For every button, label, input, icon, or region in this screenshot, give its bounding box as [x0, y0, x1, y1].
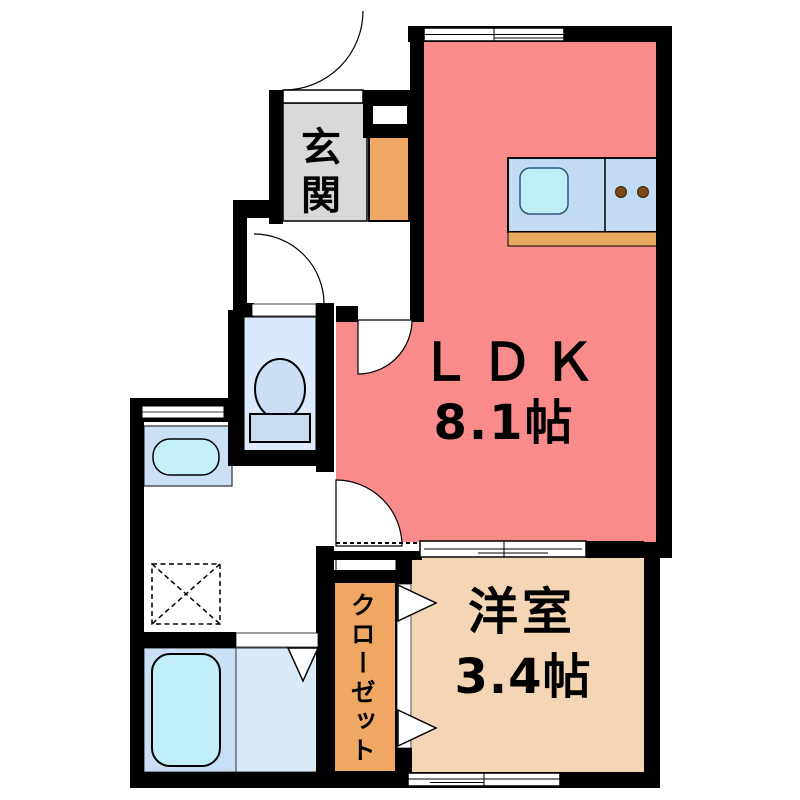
window [408, 773, 560, 786]
kitchen-unit [508, 158, 658, 246]
toilet-room [244, 317, 316, 453]
closet-top-gap [336, 558, 396, 572]
toilet-door [252, 234, 324, 316]
wall-segment [644, 542, 660, 788]
wall-segment [334, 570, 396, 582]
ldk-room-label: ＬＤＫ [412, 336, 612, 391]
kitchen-burner [616, 187, 627, 198]
wall-segment [410, 26, 424, 322]
wall-segment [130, 632, 236, 648]
wall-notch [373, 106, 407, 124]
door-swing-arc [254, 234, 324, 304]
wall-segment [233, 200, 283, 218]
floor-plan-drawing [0, 0, 800, 800]
ldk-room-area: 8.1帖 [404, 398, 604, 448]
window [424, 28, 564, 41]
wall-segment [233, 218, 247, 314]
floor-plan: ＬＤＫ 8.1帖 洋室 3.4帖 玄関 クローゼット [0, 0, 800, 800]
wall-segment [586, 541, 644, 558]
toilet-tank [250, 414, 310, 442]
door-swing-arc [284, 11, 363, 90]
entrance-door [283, 11, 363, 103]
wall-segment [396, 748, 412, 774]
western-room-area: 3.4帖 [426, 652, 620, 702]
entrance-label: 玄関 [296, 124, 338, 224]
wall-segment [316, 544, 334, 788]
western-room-label: 洋室 [430, 586, 614, 639]
bathroom [144, 648, 318, 772]
window [142, 406, 224, 418]
wall-segment [316, 303, 334, 474]
washer-space [152, 564, 220, 624]
wall-segment [396, 552, 412, 584]
wall-segment [656, 26, 672, 558]
toilet-bowl [255, 359, 305, 419]
wall-segment [130, 398, 144, 788]
washbasin-bowl [153, 439, 219, 475]
wall-segment [336, 306, 360, 322]
wall-segment [228, 310, 244, 466]
kitchen-counter-base [508, 232, 658, 246]
bathtub [152, 654, 220, 766]
kitchen-burner [638, 187, 649, 198]
washroom [144, 426, 232, 624]
shoe-cabinet [369, 137, 409, 221]
wall-segment [130, 772, 416, 788]
kitchen-sink [520, 168, 568, 214]
closet-label: クローゼット [348, 586, 374, 772]
